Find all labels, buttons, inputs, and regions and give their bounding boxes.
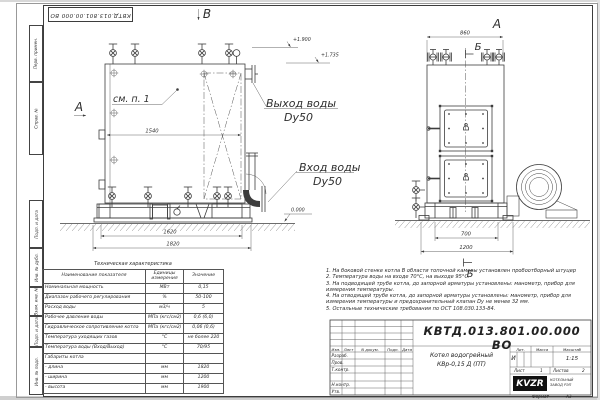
spec-cell: Номинальная мощность bbox=[43, 283, 146, 293]
side-wall-fittings bbox=[99, 130, 105, 189]
spec-cell: - ширина bbox=[43, 373, 146, 383]
spec-row: Температура воды (Вход/Выход)°С70/95 bbox=[43, 343, 224, 353]
spec-cell bbox=[184, 353, 224, 363]
spec-cell: 70/95 bbox=[184, 343, 224, 353]
spec-cell: 0,6 (6,0) bbox=[184, 313, 224, 323]
tb-scale-value: 1:15 bbox=[553, 356, 591, 362]
tb-col-list: Лист bbox=[342, 347, 355, 352]
flue-chamber-hidden-outline bbox=[204, 73, 241, 199]
outlet-label: Выход воды bbox=[266, 97, 336, 110]
tb-col-data: Дата bbox=[401, 347, 413, 352]
front-view: А 860 Б bbox=[395, 17, 590, 280]
logo-caption-line2: ЗАВОД РЭП bbox=[550, 383, 573, 388]
spec-row: - длинамм1820 bbox=[43, 363, 224, 373]
spec-cell: мм bbox=[146, 363, 184, 373]
upper-door bbox=[427, 105, 493, 152]
note-line: 5. Остальные технические требования по О… bbox=[326, 306, 592, 312]
tb-scale-label: Масштаб bbox=[553, 347, 591, 352]
tb-sheet-label: Лист bbox=[514, 368, 525, 373]
see-note-text: см. п. 1 bbox=[113, 94, 150, 105]
front-base-frame bbox=[419, 203, 513, 220]
dim-860-text: 860 bbox=[460, 31, 471, 37]
spec-cell: 0,06 (0,6) bbox=[184, 323, 224, 333]
kvzr-logo: KVZR bbox=[513, 376, 547, 391]
spec-header-name: Наименование показателя bbox=[43, 269, 146, 283]
logo-caption: КОТЕЛЬНЫЙ ЗАВОД РЭП bbox=[550, 378, 573, 387]
tb-role-tkontr: Т.контр. bbox=[332, 367, 350, 372]
drawing-sheet: КВТД.013.801.00.000 ВО Перв. примен. Спр… bbox=[0, 0, 600, 400]
tb-sheets-label: Листов bbox=[553, 368, 569, 373]
view-a-label: А bbox=[74, 100, 83, 114]
front-left-valves bbox=[412, 181, 425, 218]
section-b-top-mark: Б bbox=[466, 42, 482, 58]
spec-cell: 50-100 bbox=[184, 293, 224, 303]
spec-cell: °С bbox=[146, 343, 184, 353]
spec-cell: Рабочее давление воды bbox=[43, 313, 146, 323]
front-top-valves bbox=[428, 50, 505, 66]
spec-cell: Гидравлическое сопротивление котла bbox=[43, 323, 146, 333]
elevation-1735-mark: +1.735 bbox=[286, 53, 339, 64]
inlet-callout: Вход воды Dy50 bbox=[268, 161, 361, 202]
spec-cell: МВт bbox=[146, 283, 184, 293]
dim-1200-text: 1200 bbox=[459, 245, 473, 251]
spec-cell: мм bbox=[146, 383, 184, 393]
spec-cell: 5 bbox=[184, 303, 224, 313]
view-a-arrow: А bbox=[74, 100, 86, 116]
spec-row: Расход водым3/ч5 bbox=[43, 303, 224, 313]
tb-role-prov: Пров. bbox=[332, 360, 344, 365]
tb-lit-value: И bbox=[510, 355, 517, 362]
spec-row: Номинальная мощностьМВт0,15 bbox=[43, 283, 224, 293]
logo-caption-line1: КОТЕЛЬНЫЙ bbox=[550, 378, 573, 383]
view-b-label: В bbox=[203, 7, 211, 21]
inlet-dn-label: Dy50 bbox=[313, 175, 342, 188]
dimension-1540: 1540 bbox=[107, 129, 241, 136]
ground-line-side bbox=[60, 224, 295, 232]
format-value: А3 bbox=[566, 394, 572, 399]
tb-col-podp: Подп. bbox=[385, 347, 401, 352]
outlet-nozzle bbox=[245, 65, 258, 83]
dim-1540-text: 1540 bbox=[145, 129, 159, 135]
spec-table: Техническая характеристика Наименование … bbox=[42, 261, 224, 394]
tb-sheet-value: 1 bbox=[540, 368, 543, 373]
spec-cell: мм bbox=[146, 373, 184, 383]
product-name-line2: КВр-0,15 Д (ПТ) bbox=[413, 361, 510, 368]
spec-cell: - высота bbox=[43, 383, 146, 393]
section-b-top-label: Б bbox=[475, 42, 482, 53]
spec-cell bbox=[146, 353, 184, 363]
spec-cell: МПа (кгс/см2) bbox=[146, 323, 184, 333]
spec-cell: Габариты котла bbox=[43, 353, 146, 363]
spec-header-row: Наименование показателя Единицы измерени… bbox=[43, 269, 224, 283]
spec-row: Гидравлическое сопротивление котлаМПа (к… bbox=[43, 323, 224, 333]
spec-cell: °С bbox=[146, 333, 184, 343]
spec-cell: 0,15 bbox=[184, 283, 224, 293]
spec-cell: Диапазон рабочего регулирования bbox=[43, 293, 146, 303]
spec-cell: 1820 bbox=[184, 363, 224, 373]
inlet-pipe-elbow bbox=[243, 153, 266, 212]
dim-1620-text: 1620 bbox=[163, 230, 177, 236]
tb-mass-label: Масса bbox=[531, 347, 553, 352]
side-view: 1540 1620 1820 0.000 +1.900 bbox=[60, 7, 361, 251]
spec-cell: 1900 bbox=[184, 383, 224, 393]
spec-row: - высотамм1900 bbox=[43, 383, 224, 393]
tb-col-izm: Изм. bbox=[330, 347, 342, 352]
spec-row: Рабочее давление водыМПа (кгс/см2)0,6 (6… bbox=[43, 313, 224, 323]
spec-cell: - длина bbox=[43, 363, 146, 373]
spec-cell: Температура уходящих газов bbox=[43, 333, 146, 343]
tb-lit-label: Лит. bbox=[510, 347, 531, 352]
elevation-zero-mark: 0.000 bbox=[284, 208, 312, 222]
tb-role-utv: Утв. bbox=[332, 389, 341, 394]
tb-role-nkontr: Н.контр. bbox=[332, 382, 351, 387]
inlet-label: Вход воды bbox=[299, 161, 361, 174]
spec-cell: м3/ч bbox=[146, 303, 184, 313]
spec-cell: Температура воды (Вход/Выход) bbox=[43, 343, 146, 353]
ground-line-front bbox=[395, 221, 590, 229]
front-view-label: А bbox=[492, 17, 501, 31]
spec-table-title: Техническая характеристика bbox=[42, 261, 224, 267]
technical-notes: 1. На боковой стенке котла В области топ… bbox=[326, 268, 592, 312]
spec-cell: % bbox=[146, 293, 184, 303]
lower-door bbox=[427, 155, 493, 202]
spec-header-value: Значение bbox=[184, 269, 224, 283]
spec-row: Температура уходящих газов°Сне более 220 bbox=[43, 333, 224, 343]
spec-header-unit: Единицы измерения bbox=[146, 269, 184, 283]
tb-col-ndoc: N докум. bbox=[355, 347, 385, 352]
outlet-callout: Выход воды Dy50 bbox=[253, 83, 338, 124]
spec-cell: МПа (кгс/см2) bbox=[146, 313, 184, 323]
view-b-arrow: В bbox=[199, 7, 212, 21]
elevation-zero-text: 0.000 bbox=[291, 208, 305, 214]
spec-cell: Расход воды bbox=[43, 303, 146, 313]
dim-700-text: 700 bbox=[461, 232, 472, 238]
tb-role-razrab: Разраб. bbox=[332, 353, 348, 358]
tb-sheets-value: 2 bbox=[582, 368, 585, 373]
spec-row: Диапазон рабочего регулирования%50-100 bbox=[43, 293, 224, 303]
outlet-dn-label: Dy50 bbox=[284, 111, 313, 124]
product-name-line1: Котел водогрейный bbox=[413, 352, 510, 359]
blower-fan bbox=[507, 165, 577, 219]
format-label: Формат bbox=[532, 394, 549, 399]
elevation-1735-text: +1.735 bbox=[321, 53, 339, 59]
spec-cell: не более 220 bbox=[184, 333, 224, 343]
top-valves bbox=[109, 44, 240, 64]
elevation-1900-mark: +1.900 bbox=[252, 37, 311, 48]
dim-1820-text: 1820 bbox=[166, 242, 180, 248]
spec-cell: 1200 bbox=[184, 373, 224, 383]
spec-row: - ширинамм1200 bbox=[43, 373, 224, 383]
spec-row: Габариты котла bbox=[43, 353, 224, 363]
elevation-1900-text: +1.900 bbox=[293, 37, 311, 43]
see-note-callout: см. п. 1 bbox=[112, 88, 179, 105]
note-line: 3. На подводящей трубе котла, до запорно… bbox=[326, 281, 592, 287]
